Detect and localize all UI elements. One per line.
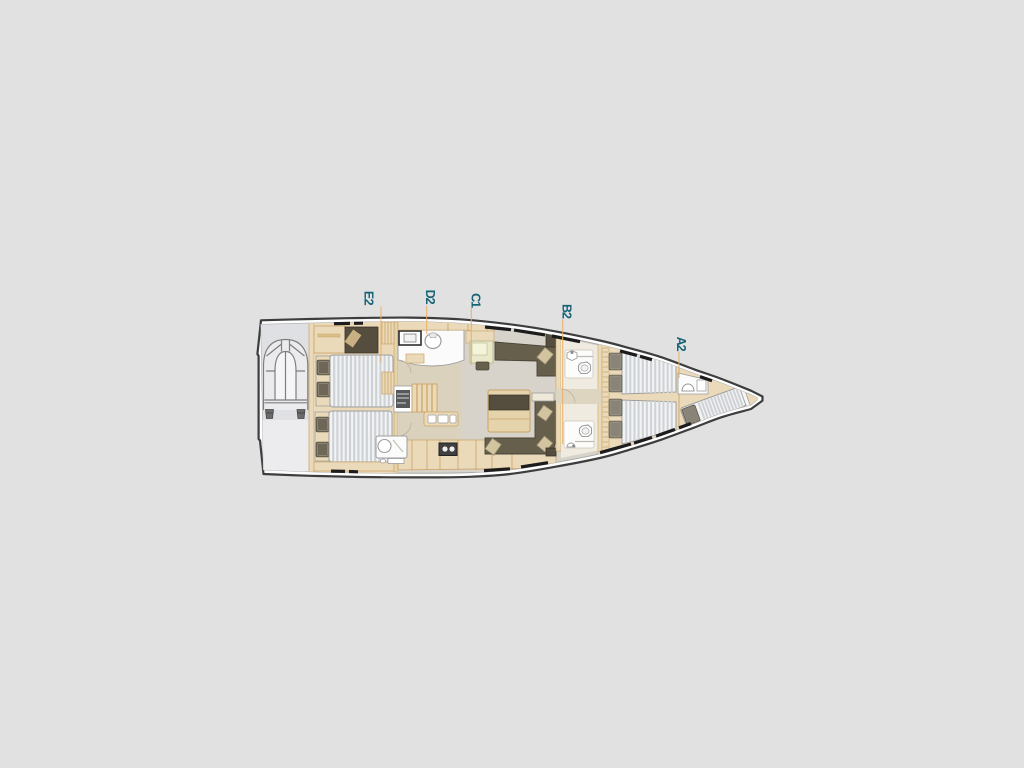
svg-text:2: 2 xyxy=(423,298,437,305)
svg-text:2: 2 xyxy=(560,312,574,319)
svg-text:2: 2 xyxy=(362,299,376,306)
svg-text:1: 1 xyxy=(468,301,482,308)
svg-text:2: 2 xyxy=(674,345,688,352)
